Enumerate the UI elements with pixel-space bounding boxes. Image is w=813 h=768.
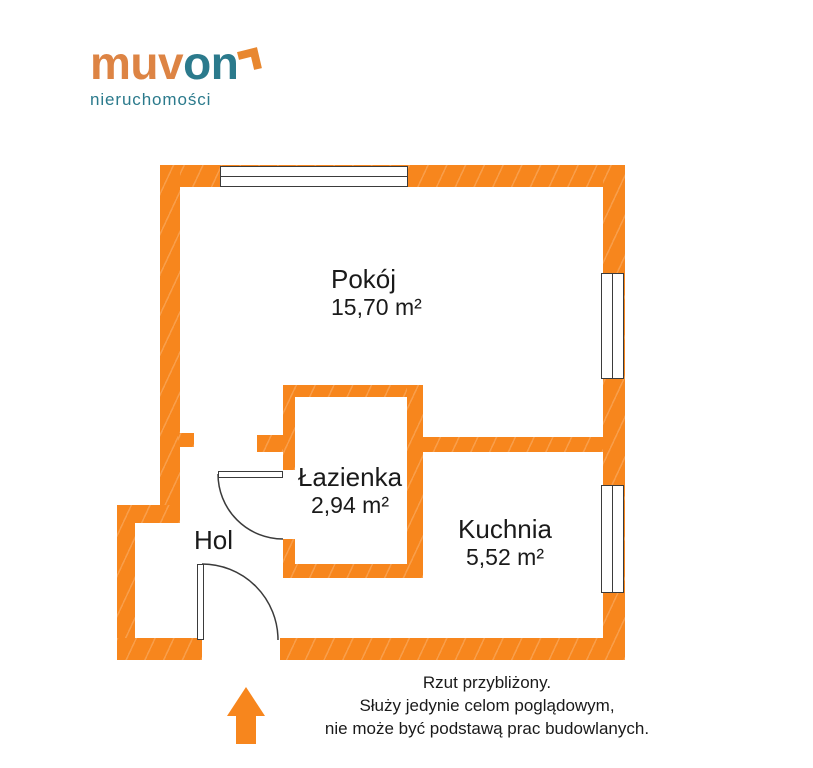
label-lazienka: Łazienka 2,94 m² <box>250 462 450 518</box>
window-pokoj-top <box>220 166 408 187</box>
room-name-lazienka: Łazienka <box>250 462 450 493</box>
label-hol: Hol <box>194 525 233 556</box>
label-kuchnia: Kuchnia 5,52 m² <box>405 514 605 570</box>
window-pokoj-right <box>601 273 624 379</box>
window-pane-line <box>612 274 614 378</box>
label-pokoj: Pokój 15,70 m² <box>331 264 422 320</box>
room-name-hol: Hol <box>194 525 233 556</box>
door-swing-arcs <box>0 0 813 768</box>
door-leaf-entrance <box>197 564 204 640</box>
room-name-pokoj: Pokój <box>331 264 422 295</box>
room-area-pokoj: 15,70 m² <box>331 295 422 320</box>
room-area-kuchnia: 5,52 m² <box>405 545 605 570</box>
window-pane-line <box>612 486 614 592</box>
window-pane-line <box>221 176 407 178</box>
room-name-kuchnia: Kuchnia <box>405 514 605 545</box>
door-arc-entrance <box>202 564 278 640</box>
floorplan-image: muvon nieruchomości Pokój 15,70 m² Łazie… <box>0 0 813 768</box>
